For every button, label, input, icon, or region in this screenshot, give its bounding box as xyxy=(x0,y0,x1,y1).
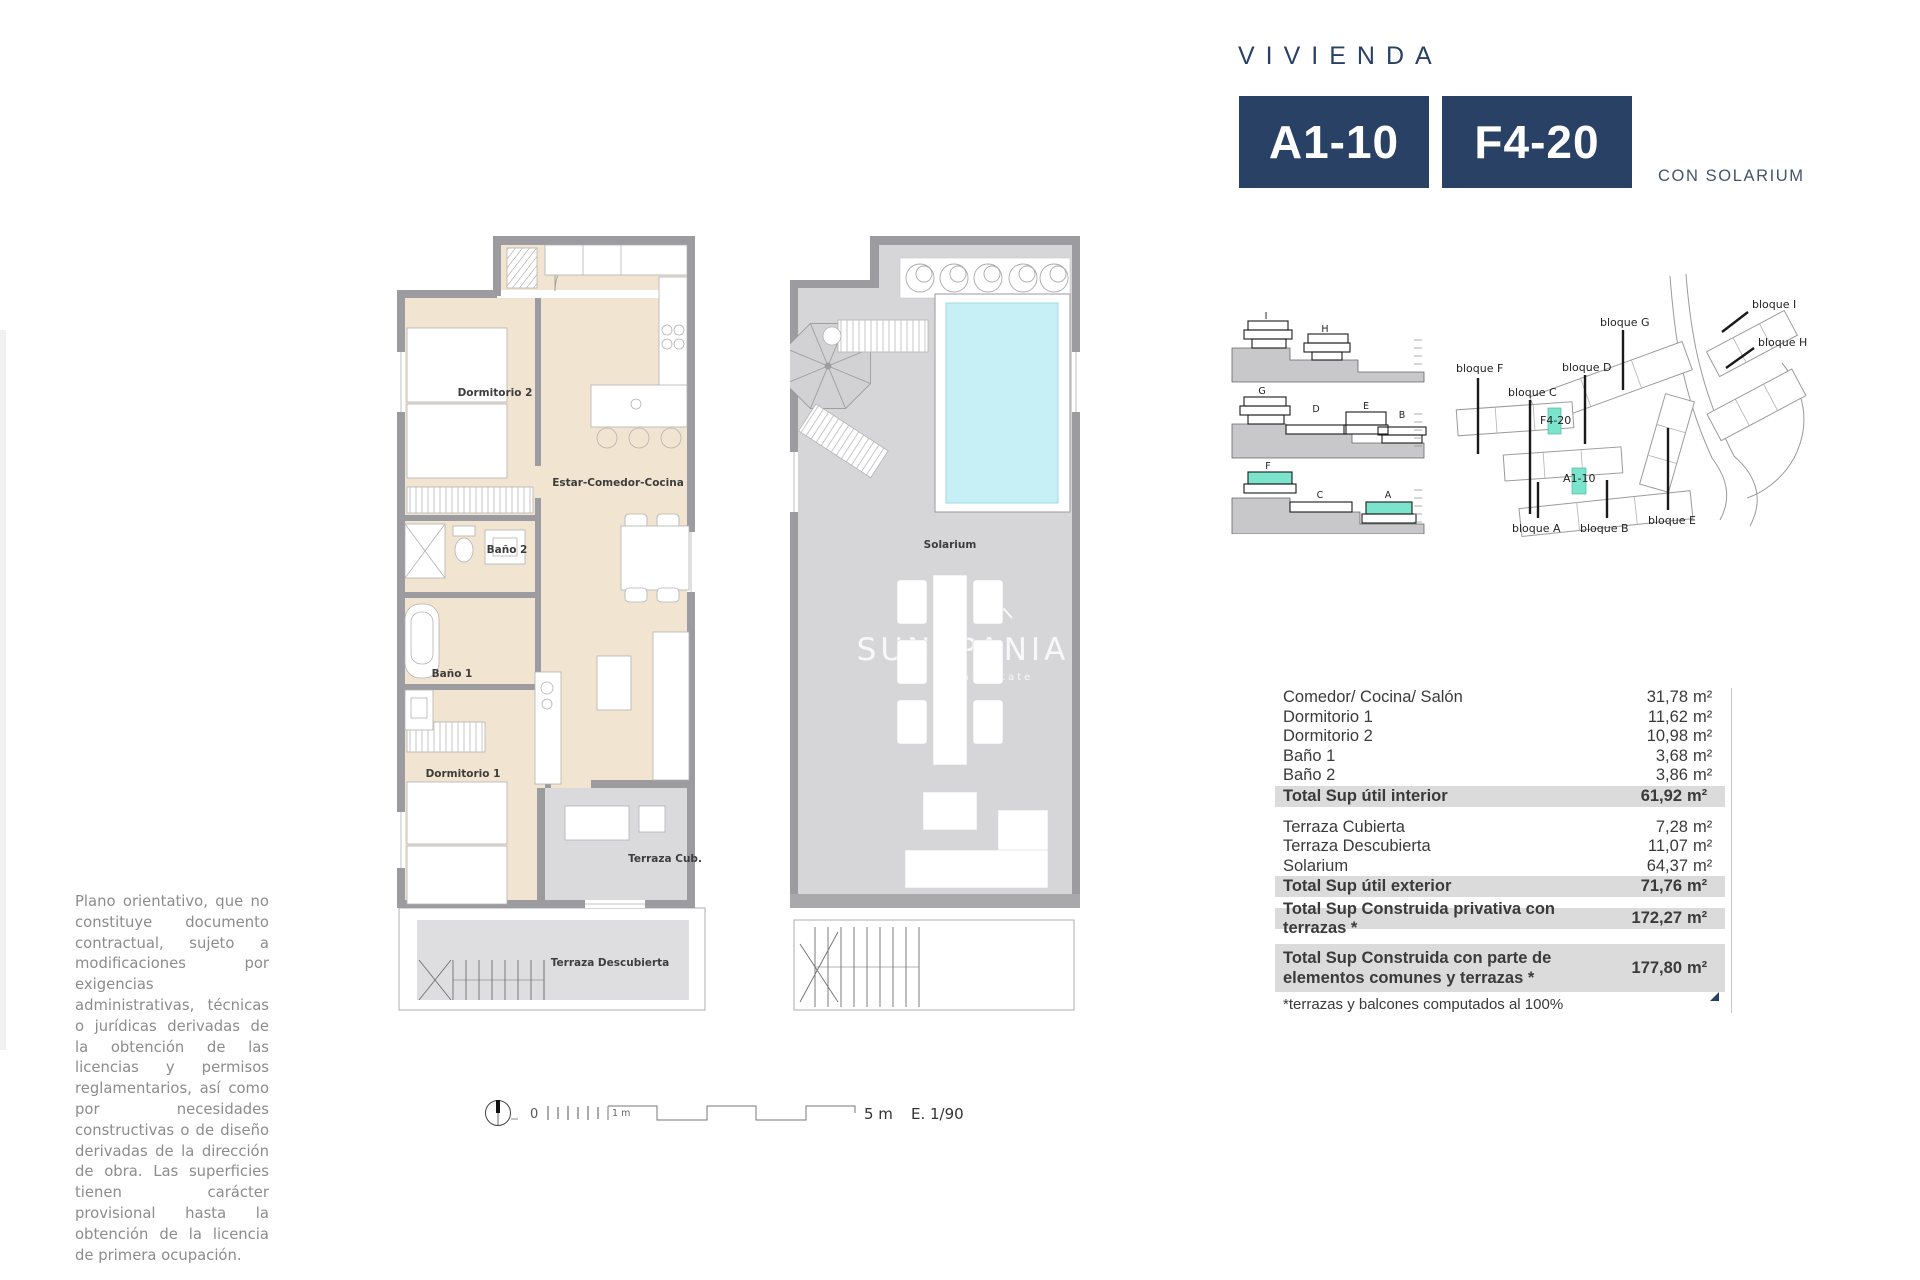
section-row-1: I H xyxy=(1232,312,1424,382)
svg-text:D: D xyxy=(1312,404,1319,415)
site-plan: bloque F bloque C bloque G bloque D bloq… xyxy=(1452,268,1832,573)
corner-mark xyxy=(1710,992,1719,1001)
interior-floor-plan: Dormitorio 2 Estar-Comedor-Cocina Baño 2… xyxy=(395,232,720,1022)
area-total-interior: Total Sup útil interior 61,92 m² xyxy=(1275,786,1725,807)
site-label-bloque-c: bloque C xyxy=(1508,386,1557,399)
area-row: Dormitorio 1 11,62 m² xyxy=(1275,708,1731,728)
area-unit: m² xyxy=(1688,766,1721,785)
area-label: Dormitorio 2 xyxy=(1283,727,1626,746)
site-label-bloque-e: bloque E xyxy=(1648,514,1696,527)
area-value: 3,68 xyxy=(1626,747,1688,766)
area-row: Solarium 64,37 m² xyxy=(1275,857,1731,877)
room-label-terraza-descubierta: Terraza Descubierta xyxy=(551,957,670,969)
room-label-bano2: Baño 2 xyxy=(487,544,528,556)
site-buildings xyxy=(1456,311,1806,537)
page-edge-strip xyxy=(0,330,6,1050)
area-row: Baño 1 3,68 m² xyxy=(1275,747,1731,767)
scale-steps xyxy=(608,1106,855,1120)
disclaimer-text: Plano orientativo, que no constituye doc… xyxy=(75,892,269,1266)
outdoor-dining-set xyxy=(897,575,1003,765)
svg-text:H: H xyxy=(1321,324,1328,335)
area-label: Baño 2 xyxy=(1283,766,1626,785)
room-label-solarium: Solarium xyxy=(924,539,977,551)
area-value: 10,98 xyxy=(1626,727,1688,746)
room-label-terraza-cub: Terraza Cub. xyxy=(628,853,702,865)
area-label: Terraza Descubierta xyxy=(1283,837,1626,856)
site-label-unit-f: F4-20 xyxy=(1540,414,1571,427)
scale-ruler-ticks xyxy=(548,1106,598,1120)
site-label-bloque-d: bloque D xyxy=(1562,361,1611,374)
scale-one-meter: 1 m xyxy=(612,1108,630,1119)
sun-lounger-1 xyxy=(823,320,928,352)
room-label-estar: Estar-Comedor-Cocina xyxy=(552,477,684,489)
solarium-floor-plan: Solarium SUNSPANIA real estate xyxy=(790,232,1082,1022)
variant-label: CON SOLARIUM xyxy=(1658,167,1805,186)
area-label: Terraza Cubierta xyxy=(1283,818,1626,837)
area-value: 11,62 xyxy=(1626,708,1688,727)
north-compass-icon xyxy=(486,1100,519,1126)
room-label-dormitorio1: Dormitorio 1 xyxy=(426,768,501,780)
vivienda-heading: VIVIENDA xyxy=(1238,42,1443,71)
area-total-exterior: Total Sup útil exterior 71,76 m² xyxy=(1275,876,1725,897)
area-row: Comedor/ Cocina/ Salón 31,78 m² xyxy=(1275,688,1731,708)
area-unit: m² xyxy=(1688,708,1721,727)
scale-five-meters: 5 m xyxy=(864,1105,893,1123)
area-row: Dormitorio 2 10,98 m² xyxy=(1275,727,1731,747)
room-label-bano1: Baño 1 xyxy=(432,668,473,680)
area-row: Baño 2 3,86 m² xyxy=(1275,766,1731,786)
unit-code-f4-20: F4-20 xyxy=(1442,96,1632,188)
site-label-bloque-f: bloque F xyxy=(1456,362,1503,375)
svg-text:A: A xyxy=(1385,490,1392,501)
site-label-bloque-b: bloque B xyxy=(1580,522,1629,535)
room-label-dormitorio2: Dormitorio 2 xyxy=(458,387,533,399)
area-value: 31,78 xyxy=(1626,688,1688,707)
area-row: Terraza Descubierta 11,07 m² xyxy=(1275,837,1731,857)
area-total-built-common: Total Sup Construida con parte de elemen… xyxy=(1275,944,1725,992)
site-label-bloque-h: bloque H xyxy=(1758,336,1807,349)
area-value: 3,86 xyxy=(1626,766,1688,785)
scale-bar: 0 1 m 5 m E. 1/90 xyxy=(478,1085,978,1137)
areas-table: Comedor/ Cocina/ Salón 31,78 m² Dormitor… xyxy=(1275,688,1732,1013)
svg-text:E: E xyxy=(1363,401,1369,412)
site-label-unit-a: A1-10 xyxy=(1563,472,1596,485)
area-label: Baño 1 xyxy=(1283,747,1626,766)
scale-ratio: E. 1/90 xyxy=(911,1105,964,1123)
area-value: 64,37 xyxy=(1626,857,1688,876)
area-unit: m² xyxy=(1688,857,1721,876)
area-label: Solarium xyxy=(1283,857,1626,876)
unit-code-a1-10: A1-10 xyxy=(1239,96,1429,188)
site-label-bloque-g: bloque G xyxy=(1600,316,1650,329)
planter-trees xyxy=(900,258,1070,298)
section-row-3: F C A xyxy=(1232,461,1424,534)
area-unit: m² xyxy=(1688,727,1721,746)
area-total-built-private: Total Sup Construida privativa con terra… xyxy=(1275,908,1725,929)
floorplan-sheet: { "header": { "eyebrow": "VIVIENDA", "un… xyxy=(0,0,1920,1280)
site-label-bloque-i: bloque I xyxy=(1752,298,1796,311)
area-value: 7,28 xyxy=(1626,818,1688,837)
pool xyxy=(935,294,1070,512)
area-row: Terraza Cubierta 7,28 m² xyxy=(1275,818,1731,838)
svg-text:B: B xyxy=(1399,410,1406,421)
svg-text:I: I xyxy=(1265,312,1268,322)
lower-level-stairs xyxy=(794,920,1074,1010)
area-label: Comedor/ Cocina/ Salón xyxy=(1283,688,1626,707)
area-label: Dormitorio 1 xyxy=(1283,708,1626,727)
areas-footnote: *terrazas y balcones computados al 100% xyxy=(1275,992,1731,1013)
site-label-bloque-a: bloque A xyxy=(1512,522,1561,535)
svg-text:F: F xyxy=(1265,461,1270,472)
area-unit: m² xyxy=(1688,818,1721,837)
svg-text:G: G xyxy=(1258,386,1265,397)
scale-zero: 0 xyxy=(530,1107,538,1122)
area-unit: m² xyxy=(1688,837,1721,856)
section-row-2: G D E B xyxy=(1232,386,1426,458)
svg-text:C: C xyxy=(1317,490,1324,501)
area-unit: m² xyxy=(1688,747,1721,766)
area-value: 11,07 xyxy=(1626,837,1688,856)
section-diagram: I H G D E B F C A xyxy=(1228,312,1428,534)
area-unit: m² xyxy=(1688,688,1721,707)
